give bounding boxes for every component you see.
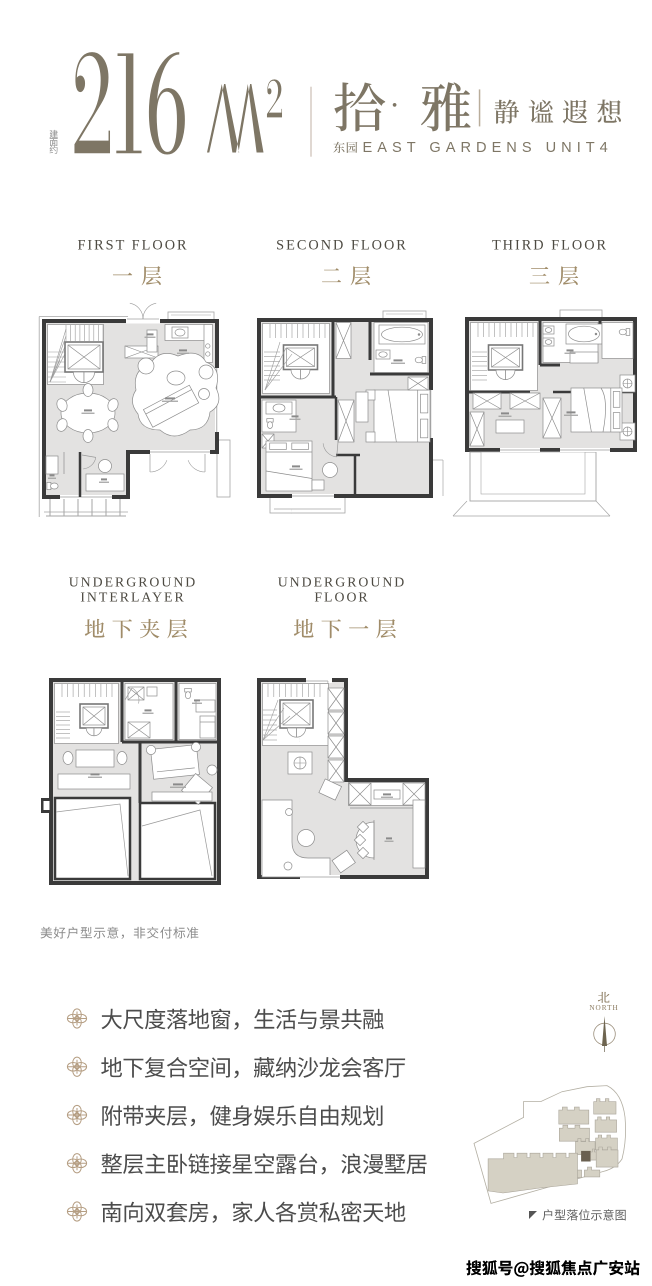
svg-text:THIRD FLOOR: THIRD FLOOR	[492, 238, 608, 254]
svg-text:INTERLAYER: INTERLAYER	[80, 590, 185, 605]
svg-text:UNDERGROUND: UNDERGROUND	[278, 575, 407, 590]
svg-text:SECOND FLOOR: SECOND FLOOR	[276, 238, 408, 254]
svg-text:EAST GARDENS UNIT4: EAST GARDENS UNIT4	[363, 140, 613, 156]
svg-text:UNDERGROUND: UNDERGROUND	[69, 575, 198, 590]
svg-text:FLOOR: FLOOR	[314, 590, 369, 605]
svg-text:NORTH: NORTH	[589, 1004, 618, 1012]
svg-text:FIRST FLOOR: FIRST FLOOR	[77, 238, 188, 254]
